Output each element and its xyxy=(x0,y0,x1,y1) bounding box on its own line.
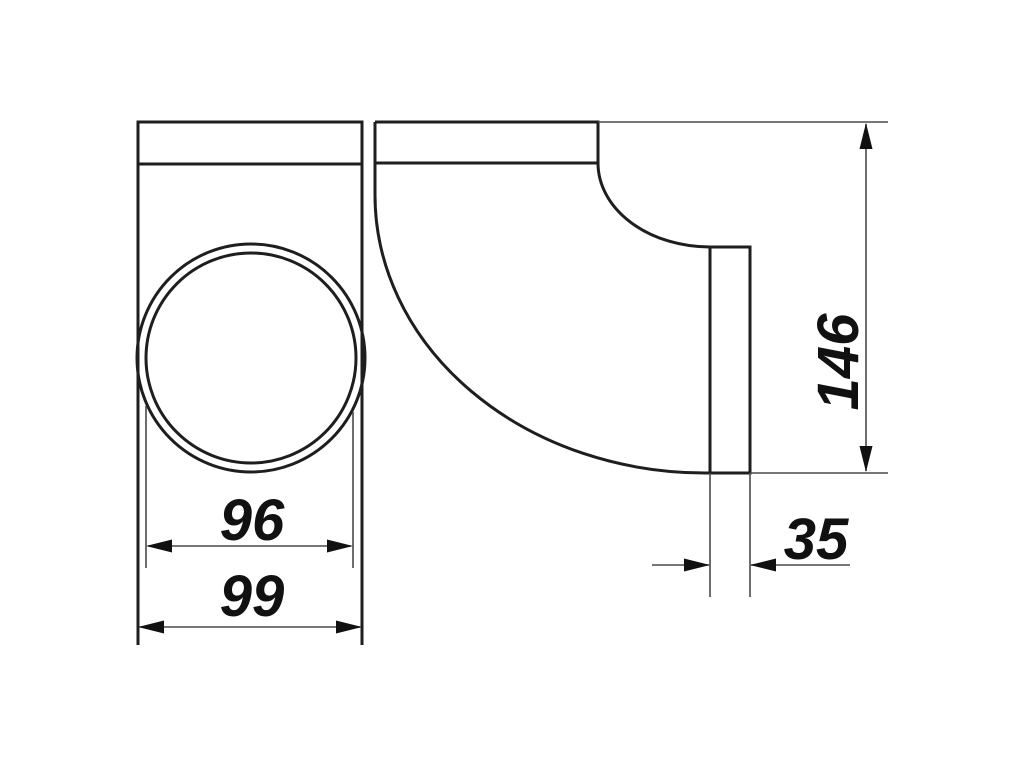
dimension-96: 96 xyxy=(146,406,353,568)
duct-outer-circle xyxy=(137,244,365,472)
dim-146-label: 146 xyxy=(806,313,871,411)
dim-146-arrow-bottom xyxy=(860,446,873,472)
dimension-146: 146 xyxy=(598,122,888,473)
dim-99-arrow-right xyxy=(336,621,362,634)
technical-drawing: 96 99 146 xyxy=(0,0,1024,768)
dimension-35: 35 xyxy=(652,473,850,597)
dim-35-arrow-left xyxy=(684,559,710,572)
dim-96-label: 96 xyxy=(220,488,285,553)
dim-96-arrow-left xyxy=(146,540,172,553)
dim-35-label: 35 xyxy=(784,507,849,572)
side-view-inner-curve xyxy=(598,163,710,247)
dim-96-arrow-right xyxy=(327,540,353,553)
dim-99-label: 99 xyxy=(220,564,285,629)
dimension-99: 99 xyxy=(138,564,362,634)
dim-35-arrow-right xyxy=(750,559,776,572)
dim-146-arrow-top xyxy=(860,123,873,149)
side-view-outline xyxy=(375,122,750,473)
drawing-canvas: 96 99 146 xyxy=(0,0,1024,768)
dim-99-arrow-left xyxy=(138,621,164,634)
side-view xyxy=(375,122,750,473)
duct-inner-circle xyxy=(146,253,356,463)
